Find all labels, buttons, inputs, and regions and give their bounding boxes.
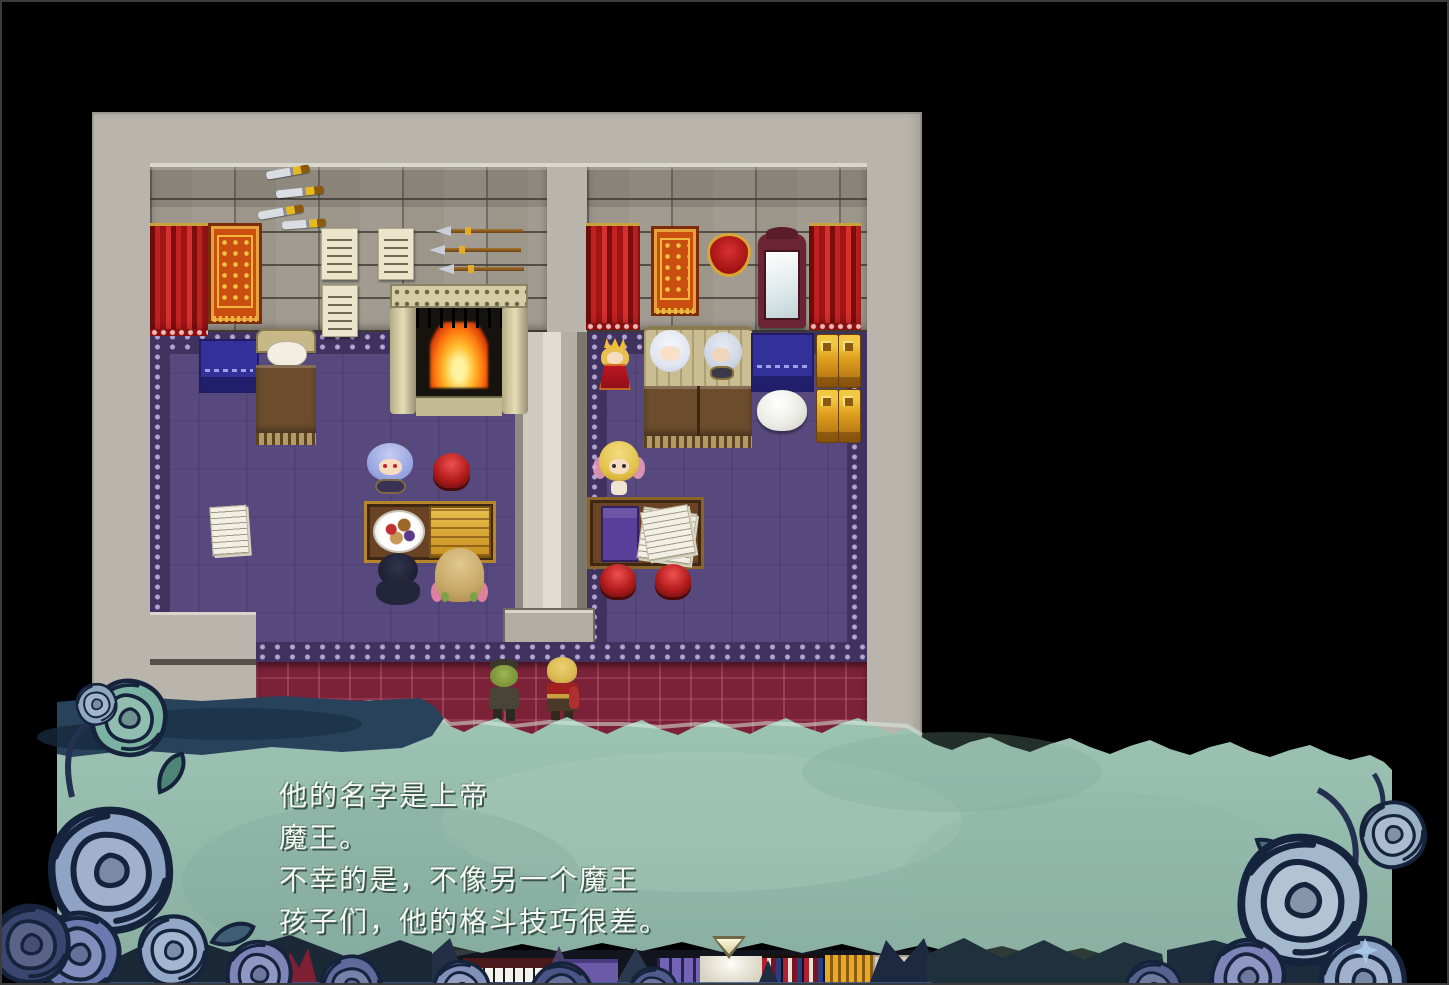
piano bbox=[463, 958, 560, 985]
gold-shelf bbox=[816, 389, 839, 443]
red-stool bbox=[433, 453, 470, 488]
dialogue-continue-icon[interactable] bbox=[712, 936, 746, 959]
fire-icon bbox=[430, 322, 488, 388]
fireplace[interactable] bbox=[390, 284, 528, 414]
purple-book bbox=[601, 506, 639, 562]
organ-pipes bbox=[825, 955, 873, 985]
gold-shelf bbox=[838, 334, 861, 388]
wall-banner bbox=[208, 223, 262, 324]
wall-step bbox=[150, 612, 256, 665]
white-cloth-table bbox=[700, 956, 762, 985]
warrior-npc[interactable] bbox=[543, 657, 581, 725]
demon-girl-npc[interactable] bbox=[366, 439, 416, 495]
wall-note bbox=[321, 228, 358, 280]
blue-mat bbox=[751, 333, 814, 392]
floor-book[interactable] bbox=[209, 505, 249, 556]
wall-spears bbox=[429, 224, 525, 284]
dark-robed-npc[interactable] bbox=[376, 553, 420, 605]
standing-mirror bbox=[758, 234, 806, 328]
purple-bed bbox=[560, 959, 618, 985]
gold-shelf bbox=[816, 334, 839, 388]
red-stool bbox=[655, 564, 691, 597]
red-curtain bbox=[150, 223, 208, 336]
red-stool bbox=[600, 564, 636, 597]
red-curtain bbox=[809, 223, 861, 330]
wall-step-shadow bbox=[150, 659, 256, 665]
wall-banner bbox=[651, 226, 699, 316]
blonde-npc[interactable] bbox=[431, 548, 488, 608]
bookshelf bbox=[762, 955, 825, 985]
paper-sheets bbox=[640, 504, 696, 562]
red-curtain bbox=[586, 223, 640, 330]
fairy-npc[interactable] bbox=[595, 441, 643, 499]
double-beds[interactable] bbox=[644, 326, 752, 448]
slime-npc[interactable] bbox=[757, 390, 807, 431]
queen-npc[interactable] bbox=[597, 338, 633, 390]
gold-shelf bbox=[838, 389, 861, 443]
dialogue-line-2: 魔王。 bbox=[279, 823, 369, 853]
white-cabinet bbox=[873, 955, 928, 985]
bed[interactable] bbox=[256, 329, 316, 447]
dialogue-line-4: 孩子们，他的格斗技巧很差。 bbox=[279, 907, 669, 937]
purple-arched-bed bbox=[657, 958, 700, 985]
wall-note bbox=[322, 285, 358, 337]
dialogue-line-3: 不幸的是，不像另一个魔王 bbox=[279, 865, 639, 895]
dialogue-line-1: 他的名字是上帝 bbox=[279, 781, 489, 811]
bottom-map-strip bbox=[400, 950, 932, 985]
goblin-npc[interactable] bbox=[485, 657, 523, 721]
food-plate bbox=[373, 510, 425, 553]
game-screen: 他的名字是上帝 魔王。 不幸的是，不像另一个魔王 孩子们，他的格斗技巧很差。 bbox=[0, 0, 1449, 985]
game-map[interactable] bbox=[2, 2, 1449, 985]
blue-mat bbox=[199, 339, 259, 393]
wall-daggers bbox=[252, 162, 342, 234]
study-desk[interactable] bbox=[587, 497, 704, 569]
wall-note bbox=[378, 228, 414, 280]
